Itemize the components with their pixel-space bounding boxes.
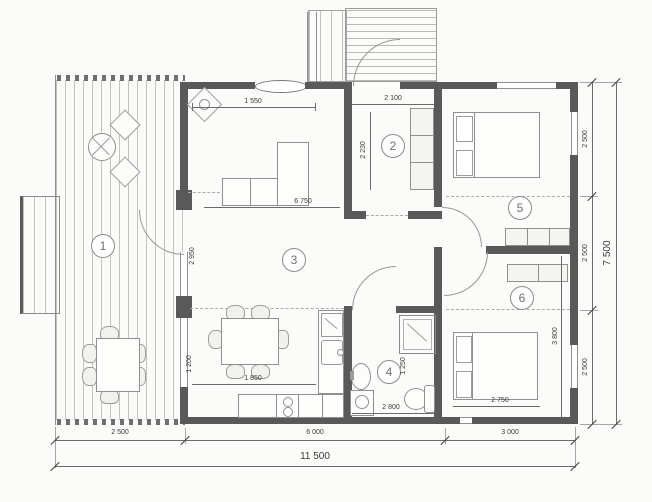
extension-line: [575, 427, 576, 468]
counter-divider: [322, 395, 323, 417]
floor-plan-canvas: 1 2 3 4 5 6 1 550 2 100 2 230 2 950 6 75…: [0, 0, 652, 502]
bathroom-door-arc: [352, 266, 396, 310]
extension-line: [55, 427, 56, 468]
counter-divider: [276, 395, 277, 417]
dim-label-living-left: 2 950: [189, 247, 197, 265]
dim-label-bottom-left: 2 500: [111, 429, 129, 437]
wardrobe-shelf-line: [411, 135, 433, 136]
dim-line-bed6-h: [561, 256, 562, 418]
dim-line-right-col1: [592, 82, 593, 424]
dim-label-living-mid: 6 750: [294, 198, 312, 206]
dim-tick: [192, 103, 193, 111]
stove-burner: [283, 407, 293, 417]
window-bedroom6-right: [571, 345, 578, 388]
wall-bed5-bed6: [486, 246, 572, 254]
bedroom5-wardrobe: [505, 228, 570, 246]
wall-left-pier: [176, 190, 192, 210]
kitchen-faucet: [337, 349, 344, 356]
counter-divider: [298, 395, 299, 417]
dim-label-bottom-right: 3 000: [501, 429, 519, 437]
dim-label-hall-top: 2 100: [384, 95, 402, 103]
wall-right: [570, 388, 578, 424]
hall-wardrobe: [410, 108, 434, 190]
dim-label-bath-h: 1 250: [400, 357, 408, 375]
bath-sink: [351, 363, 371, 390]
dining-table: [221, 318, 279, 365]
dim-label-right-bottom: 2 500: [582, 358, 590, 376]
dashed-line: [446, 309, 570, 310]
bath-sink-tap: [350, 371, 354, 380]
dining-chair: [226, 364, 245, 379]
pillow: [456, 116, 473, 142]
dim-label-living-top: 1 550: [244, 98, 262, 106]
pillow: [456, 336, 472, 363]
washing-machine-drum: [355, 395, 369, 409]
window-lens-living: [255, 80, 307, 93]
dim-label-right-total: 7 500: [603, 240, 613, 265]
wall-bottom: [352, 417, 460, 424]
wall-left: [180, 82, 188, 192]
dim-line-bottom-row1: [55, 440, 575, 441]
dim-label-bed6-w: 2 750: [491, 397, 509, 405]
room-label-1: 1: [91, 234, 115, 258]
deck-plank-ends-bottom: [57, 419, 185, 425]
dim-tick: [315, 103, 316, 111]
wardrobe-divider: [527, 229, 528, 245]
dim-line-bottom-row2: [55, 466, 575, 467]
dim-line-right-col2: [616, 82, 617, 424]
deck-side-step: [20, 196, 60, 314]
deck-dining-chair: [82, 367, 97, 386]
dim-line-living-top: [192, 107, 316, 108]
dim-label-bottom-mid: 6 000: [306, 429, 324, 437]
wall-bedroom-divider-upper: [434, 82, 442, 207]
extension-line: [185, 428, 186, 444]
deck-plank-ends-top: [57, 75, 185, 81]
sofa-chaise: [277, 142, 309, 206]
dashed-line-hall-opening: [366, 215, 408, 216]
deck-dining-chair: [82, 344, 97, 363]
wall-top: [400, 82, 497, 89]
wall-bottom: [182, 417, 352, 424]
dim-label-kitchen: 1 850: [244, 375, 262, 383]
wall-top: [182, 82, 255, 89]
chimney-flue: [307, 12, 317, 82]
room-label-3: 3: [282, 248, 306, 272]
bed-headboard-line: [472, 333, 473, 399]
wall-right: [570, 155, 578, 250]
wall-hall-stub-left: [344, 211, 366, 219]
dim-line-bed6-w: [453, 406, 540, 407]
wardrobe-shelf-line: [411, 162, 433, 163]
dim-label-kitchen-left: 1 200: [186, 355, 194, 373]
sofa-cushion-line: [250, 179, 251, 205]
dim-line-hall-left: [370, 112, 371, 190]
room-label-2: 2: [381, 134, 405, 158]
wall-left-pier: [176, 296, 192, 318]
dim-line-kitchen: [192, 384, 316, 385]
pillow: [456, 371, 472, 398]
window-bedroom5-right: [571, 112, 578, 155]
stove-burner: [283, 397, 293, 407]
dim-label-hall-left: 2 230: [360, 141, 368, 159]
wall-living-hall: [344, 82, 352, 218]
wall-bath-top: [396, 306, 442, 313]
pillow: [456, 150, 473, 176]
wall-right: [570, 82, 578, 112]
toilet-tank: [424, 385, 435, 413]
wardrobe-divider: [549, 229, 550, 245]
room-label-6: 6: [510, 286, 534, 310]
wall-hall-stub-right: [408, 211, 442, 219]
window-living-left: [180, 252, 188, 296]
dim-label-bath-w: 2 800: [382, 404, 400, 412]
window-bedroom5-top: [497, 82, 556, 89]
dashed-line: [446, 196, 570, 197]
wall-left: [180, 387, 188, 424]
bedroom5-door-arc: [442, 207, 482, 247]
window-kitchen-left: [180, 318, 188, 387]
wardrobe-divider: [538, 265, 539, 281]
bed-headboard-line: [474, 113, 475, 177]
bedroom6-door-arc: [444, 252, 488, 296]
deck-dining-table: [96, 338, 140, 392]
wall-bottom: [472, 417, 578, 424]
dim-line-hall-top: [352, 104, 434, 105]
room-label-5: 5: [508, 196, 532, 220]
dim-label-right-mid: 2 500: [582, 244, 590, 262]
wall-right: [570, 250, 578, 345]
room-label-4: 4: [377, 360, 401, 384]
extension-line: [445, 428, 446, 444]
dashed-line: [188, 192, 220, 193]
window-bottom-small: [460, 417, 472, 424]
fireplace-flue-circle: [199, 99, 210, 110]
dim-label-bed6-h: 3 800: [552, 327, 560, 345]
dim-label-right-top: 2 500: [582, 130, 590, 148]
dim-line-bath: [352, 413, 434, 414]
dim-label-bottom-total: 11 500: [300, 452, 330, 462]
dim-line-living-mid: [204, 207, 340, 208]
